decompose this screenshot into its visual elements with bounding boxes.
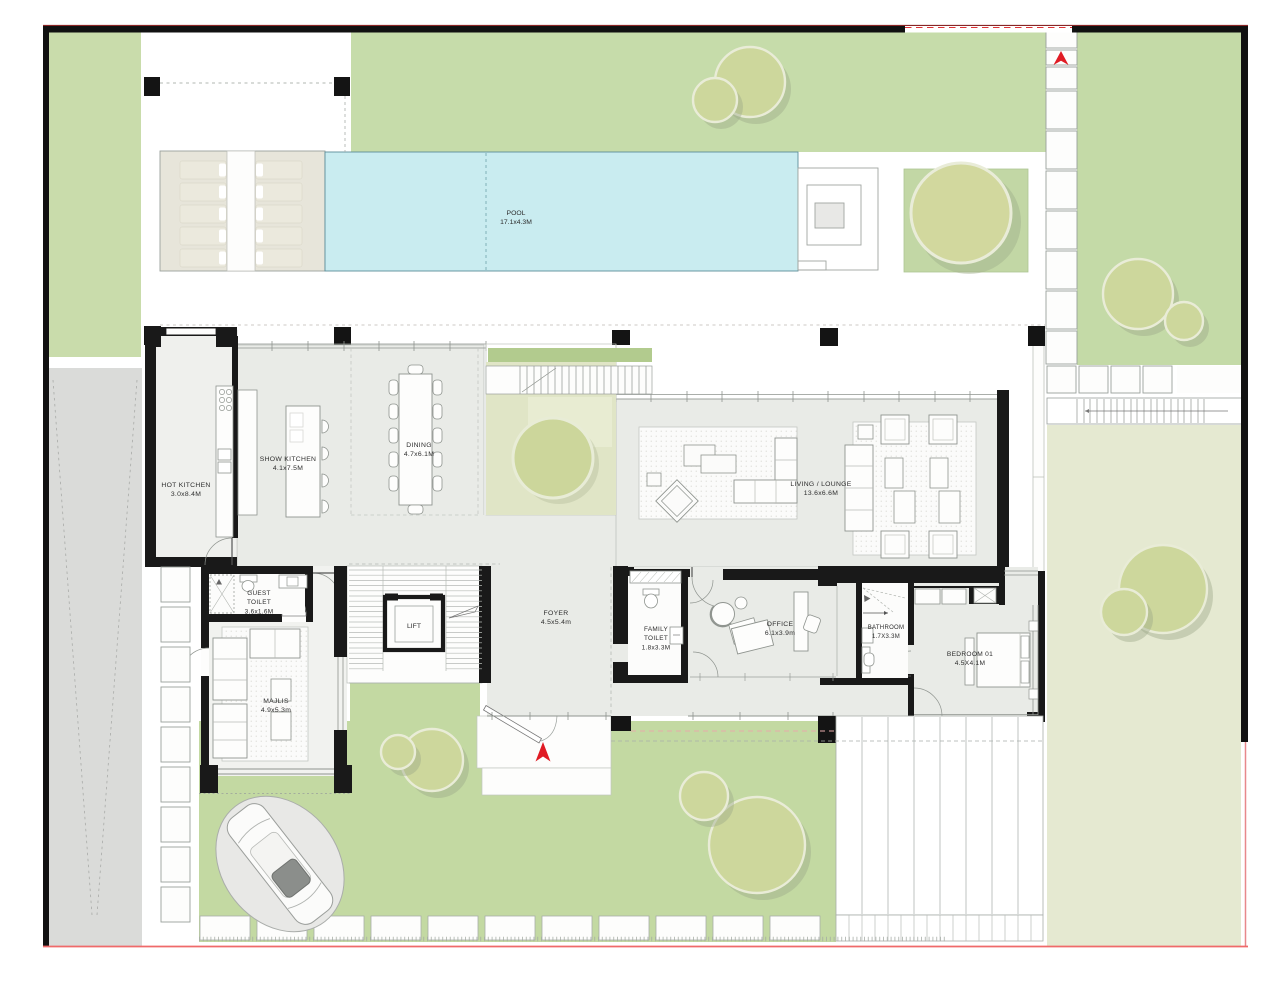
svg-text:LIFT: LIFT — [407, 623, 421, 630]
svg-text:GUESTTOILET3.6x1.6M: GUESTTOILET3.6x1.6M — [245, 590, 274, 615]
svg-text:POOL: POOL — [507, 210, 526, 217]
svg-text:17.1x4.3M: 17.1x4.3M — [500, 219, 532, 226]
svg-text:FAMILYTOILET1.8x3.3M: FAMILYTOILET1.8x3.3M — [642, 626, 671, 651]
